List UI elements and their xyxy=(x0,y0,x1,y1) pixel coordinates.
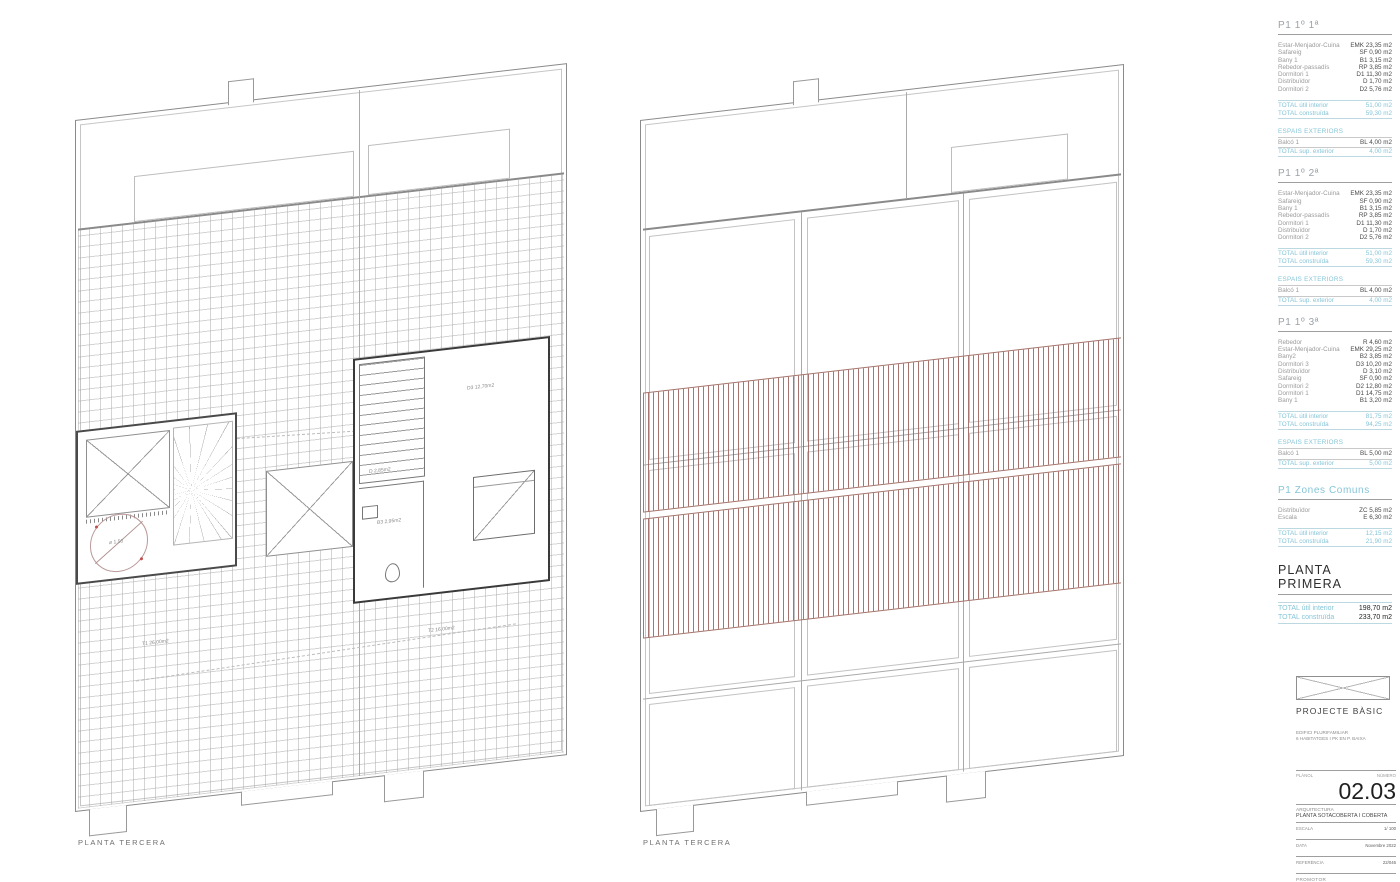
room-rows: Distribuïdor ZC 5,85 m2 Escala E 6,30 m2 xyxy=(1278,507,1392,522)
logo-placeholder-icon xyxy=(1296,676,1390,700)
total-row: TOTAL construïda 59,30 m2 xyxy=(1278,258,1392,266)
zones-heading: P1 Zones Comuns xyxy=(1278,485,1392,496)
room-area: B1 3,20 m2 xyxy=(1360,397,1392,404)
room-label: Escala xyxy=(1278,514,1297,521)
date-row: DATA Novembre 2022 xyxy=(1296,840,1396,856)
exterior-heading: ESPAIS EXTERIORS xyxy=(1278,128,1392,135)
unit-heading: P1 1º 3ª xyxy=(1278,317,1392,328)
roof-terrace-rect xyxy=(951,133,1068,193)
total-value: 59,30 m2 xyxy=(1366,110,1392,118)
area-schedule-sidebar: P1 1º 1ª Estar-Menjador-Cuina EMK 23,35 … xyxy=(1278,20,1392,624)
exterior-heading: ESPAIS EXTERIORS xyxy=(1278,276,1392,283)
total-label: TOTAL sup. exterior xyxy=(1278,148,1334,156)
room-row: Dormitori 1 D1 11,30 m2 xyxy=(1278,220,1392,227)
divider xyxy=(1296,804,1396,805)
stair-overhang xyxy=(946,771,986,803)
room-area: EMK 29,25 m2 xyxy=(1350,346,1392,353)
stair-overhang xyxy=(89,805,127,836)
room-label: Bany 1 xyxy=(1278,397,1298,404)
room-area: D 1,70 m2 xyxy=(1363,78,1392,85)
room-area: RP 3,85 m2 xyxy=(1359,64,1392,71)
room-label: Estar-Menjador-Cuina xyxy=(1278,346,1340,353)
title-block: PROJECTE BÀSIC EDIFICI PLURIFAMILIAR 6 H… xyxy=(1296,676,1396,882)
room-row: Safareig SF 0,90 m2 xyxy=(1278,198,1392,205)
room-label: Rebedor-passadís xyxy=(1278,212,1329,219)
room-row: Rebedor-passadís RP 3,85 m2 xyxy=(1278,212,1392,219)
total-label: TOTAL útil interior xyxy=(1278,102,1328,110)
stair-core: ø 1,50 xyxy=(76,412,237,585)
room-area: D1 14,75 m2 xyxy=(1356,390,1392,397)
room-label: Distribuïdor xyxy=(1278,368,1310,375)
curved-stair xyxy=(173,421,233,546)
room-area: B1 3,15 m2 xyxy=(1360,57,1392,64)
room-area: EMK 23,35 m2 xyxy=(1350,190,1392,197)
total-row: TOTAL construïda 94,25 m2 xyxy=(1278,421,1392,429)
room-row: Rebedor-passadís RP 3,85 m2 xyxy=(1278,64,1392,71)
room-row: Distribuïdor D 1,70 m2 xyxy=(1278,78,1392,85)
divider xyxy=(1278,182,1392,183)
skylight xyxy=(266,461,353,557)
exterior-row: Balcó 1 BL 4,00 m2 xyxy=(1278,287,1392,294)
plan-caption-left: PLANTA TERCERA xyxy=(78,838,166,847)
room-rows: Estar-Menjador-Cuina EMK 23,35 m2 Safare… xyxy=(1278,42,1392,93)
total-value: 4,00 m2 xyxy=(1369,297,1392,305)
total-value: 198,70 m2 xyxy=(1359,604,1392,613)
room-row: Dormitori 1 D1 14,75 m2 xyxy=(1278,390,1392,397)
room-area: SF 0,90 m2 xyxy=(1359,49,1392,56)
total-label: TOTAL útil interior xyxy=(1278,530,1328,538)
escala-value: 1/ 100 xyxy=(1384,826,1396,831)
total-label: TOTAL construïda xyxy=(1278,538,1329,546)
room-label: Distribuïdor xyxy=(1278,507,1310,514)
sheet-number: 02.03 xyxy=(1296,778,1396,804)
zones-totals: TOTAL útil interior 12,15 m2 TOTAL const… xyxy=(1278,528,1392,547)
total-row: TOTAL útil interior 51,00 m2 xyxy=(1278,250,1392,258)
room-area: BL 4,00 m2 xyxy=(1360,287,1392,294)
total-label: TOTAL construïda xyxy=(1278,258,1329,266)
project-line2: 6 HABITATGES I PK EN P. BAIXA xyxy=(1296,736,1396,742)
ref-label: REFERÈNCIA xyxy=(1296,860,1324,865)
promotor-label: PROMOTOR xyxy=(1296,874,1396,882)
exterior-row: Balcó 1 BL 5,00 m2 xyxy=(1278,450,1392,457)
total-value: 5,00 m2 xyxy=(1369,460,1392,468)
room-label: Dormitori 3 xyxy=(1278,361,1309,368)
sheet-title: PLANTA SOTACOBERTA I COBERTA xyxy=(1296,813,1396,819)
roof-panel xyxy=(969,650,1117,769)
room-label: Dormitori 2 xyxy=(1278,383,1309,390)
scale-row: ESCALA 1/ 100 xyxy=(1296,823,1396,839)
room-label: Distribuïdor xyxy=(1278,227,1310,234)
room-area: D2 5,76 m2 xyxy=(1359,234,1392,241)
total-value: 59,30 m2 xyxy=(1366,258,1392,266)
elevator-shaft xyxy=(86,430,170,518)
room-label: Dormitori 2 xyxy=(1278,86,1309,93)
reference-row: REFERÈNCIA 22/046 xyxy=(1296,857,1396,873)
room-label: Estar-Menjador-Cuina xyxy=(1278,42,1340,49)
room-area: E 6,30 m2 xyxy=(1363,514,1392,521)
room-label: Rebedor-passadís xyxy=(1278,64,1329,71)
total-label: TOTAL construïda xyxy=(1278,110,1329,118)
total-value: 21,90 m2 xyxy=(1366,538,1392,546)
room-row: Dormitori 1 D1 11,30 m2 xyxy=(1278,71,1392,78)
total-label: TOTAL sup. exterior xyxy=(1278,460,1334,468)
room-row: Escala E 6,30 m2 xyxy=(1278,514,1392,521)
roof-panel xyxy=(649,687,795,806)
floor-plan-right xyxy=(640,64,1124,812)
total-row: TOTAL útil interior 198,70 m2 xyxy=(1278,604,1392,613)
room-area: D3 10,20 m2 xyxy=(1356,361,1392,368)
room-area: ZC 5,85 m2 xyxy=(1359,507,1392,514)
room-rows: Rebedor R 4,60 m2 Estar-Menjador-Cuina E… xyxy=(1278,339,1392,405)
room-row: Dormitori 2 D2 12,80 m2 xyxy=(1278,383,1392,390)
exterior-heading: ESPAIS EXTERIORS xyxy=(1278,439,1392,446)
room-label: Bany 1 xyxy=(1278,57,1298,64)
room-area: BL 4,00 m2 xyxy=(1360,139,1392,146)
total-label: TOTAL construïda xyxy=(1278,613,1334,622)
plan-caption-right: PLANTA TERCERA xyxy=(643,838,731,847)
total-row: TOTAL útil interior 12,15 m2 xyxy=(1278,530,1392,538)
interior-stair xyxy=(359,357,425,485)
room-row: Distribuïdor ZC 5,85 m2 xyxy=(1278,507,1392,514)
data-value: Novembre 2022 xyxy=(1365,843,1396,848)
divider xyxy=(1278,34,1392,35)
project-type: PROJECTE BÀSIC xyxy=(1296,706,1396,716)
room-label: Dormitori 1 xyxy=(1278,220,1309,227)
total-row: TOTAL construïda 21,90 m2 xyxy=(1278,538,1392,546)
room-row: Estar-Menjador-Cuina EMK 23,35 m2 xyxy=(1278,42,1392,49)
exterior-rows: Balcó 1 BL 4,00 m2 xyxy=(1278,285,1392,296)
room-row: Estar-Menjador-Cuina EMK 29,25 m2 xyxy=(1278,346,1392,353)
total-value: 233,70 m2 xyxy=(1359,613,1392,622)
total-value: 12,15 m2 xyxy=(1366,530,1392,538)
total-value: 4,00 m2 xyxy=(1369,148,1392,156)
room-label: D3 12,70m2 xyxy=(467,382,494,391)
roof-notch xyxy=(228,78,254,105)
room-area: SF 0,90 m2 xyxy=(1359,198,1392,205)
exterior-row: Balcó 1 BL 4,00 m2 xyxy=(1278,139,1392,146)
roof-panel xyxy=(807,668,959,788)
exterior-rows: Balcó 1 BL 5,00 m2 xyxy=(1278,448,1392,459)
room-row: Bany 1 B1 3,20 m2 xyxy=(1278,397,1392,404)
room-rows: Estar-Menjador-Cuina EMK 23,35 m2 Safare… xyxy=(1278,190,1392,241)
exterior-total: TOTAL sup. exterior 4,00 m2 xyxy=(1278,297,1392,306)
total-value: 51,00 m2 xyxy=(1366,102,1392,110)
room-label: Rebedor xyxy=(1278,339,1302,346)
total-label: TOTAL útil interior xyxy=(1278,604,1334,613)
divider xyxy=(1278,594,1392,595)
room-area: B1 3,15 m2 xyxy=(1360,205,1392,212)
divider xyxy=(1278,331,1392,332)
unit-schedule-3: P1 1º 3ª Rebedor R 4,60 m2 Estar-Menjado… xyxy=(1278,317,1392,469)
room-area: D 1,70 m2 xyxy=(1363,227,1392,234)
sink-icon xyxy=(362,505,378,520)
unit-schedule-2: P1 1º 2ª Estar-Menjador-Cuina EMK 23,35 … xyxy=(1278,168,1392,305)
total-value: 51,00 m2 xyxy=(1366,250,1392,258)
room-label: Dormitori 1 xyxy=(1278,71,1309,78)
unit-totals: TOTAL útil interior 51,00 m2 TOTAL const… xyxy=(1278,100,1392,119)
room-row: Bany2 B2 3,85 m2 xyxy=(1278,353,1392,360)
stair-overhang xyxy=(656,805,694,836)
total-row: TOTAL construïda 233,70 m2 xyxy=(1278,613,1392,622)
room-area: B2 3,85 m2 xyxy=(1360,353,1392,360)
room-row: Safareig SF 0,90 m2 xyxy=(1278,375,1392,382)
planol-label: PLÀNOL xyxy=(1296,773,1313,778)
stair-overhang xyxy=(384,771,424,803)
room-area: D 3,10 m2 xyxy=(1363,368,1392,375)
total-row: TOTAL útil interior 81,75 m2 xyxy=(1278,413,1392,421)
unit-totals: TOTAL útil interior 81,75 m2 TOTAL const… xyxy=(1278,411,1392,430)
unit-heading: P1 1º 2ª xyxy=(1278,168,1392,179)
room-label: Balcó 1 xyxy=(1278,139,1299,146)
room-label: Bany2 xyxy=(1278,353,1296,360)
room-area: SF 0,90 m2 xyxy=(1359,375,1392,382)
room-row: Dormitori 3 D3 10,20 m2 xyxy=(1278,361,1392,368)
total-row: TOTAL útil interior 51,00 m2 xyxy=(1278,102,1392,110)
total-label: TOTAL construïda xyxy=(1278,421,1329,429)
room-label: Safareig xyxy=(1278,49,1301,56)
room-label: Estar-Menjador-Cuina xyxy=(1278,190,1340,197)
room-area: D2 5,76 m2 xyxy=(1359,86,1392,93)
room-label: Safareig xyxy=(1278,375,1301,382)
data-label: DATA xyxy=(1296,843,1307,848)
room-label: Balcó 1 xyxy=(1278,287,1299,294)
dimension-dot xyxy=(95,525,98,528)
divider xyxy=(1278,499,1392,500)
exterior-rows: Balcó 1 BL 4,00 m2 xyxy=(1278,137,1392,148)
total-label: TOTAL útil interior xyxy=(1278,413,1328,421)
room-row: Rebedor R 4,60 m2 xyxy=(1278,339,1392,346)
room-label: Safareig xyxy=(1278,198,1301,205)
total-label: TOTAL sup. exterior xyxy=(1278,297,1334,305)
room-label: Balcó 1 xyxy=(1278,450,1299,457)
total-row: TOTAL construïda 59,30 m2 xyxy=(1278,110,1392,118)
room-area: EMK 23,35 m2 xyxy=(1350,42,1392,49)
room-area: BL 5,00 m2 xyxy=(1360,450,1392,457)
bed-icon xyxy=(473,470,535,541)
exterior-total: TOTAL sup. exterior 4,00 m2 xyxy=(1278,148,1392,157)
attic-suite: D3 12,70m2 D 2,85m2 B3 2,95m2 xyxy=(353,336,550,604)
floor-plan-left: ø 1,50 D3 12,70m2 D 2,85m2 B3 2,95m2 T1 … xyxy=(75,63,567,812)
toilet-icon xyxy=(385,562,400,583)
room-row: Estar-Menjador-Cuina EMK 23,35 m2 xyxy=(1278,190,1392,197)
unit-totals: TOTAL útil interior 51,00 m2 TOTAL const… xyxy=(1278,248,1392,267)
unit-schedule-1: P1 1º 1ª Estar-Menjador-Cuina EMK 23,35 … xyxy=(1278,20,1392,157)
party-wall-line xyxy=(906,92,907,198)
room-row: Dormitori 2 D2 5,76 m2 xyxy=(1278,86,1392,93)
floor-total-schedule: PLANTA PRIMERA TOTAL útil interior 198,7… xyxy=(1278,563,1392,624)
unit-heading: P1 1º 1ª xyxy=(1278,20,1392,31)
room-row: Safareig SF 0,90 m2 xyxy=(1278,49,1392,56)
room-label: Dormitori 2 xyxy=(1278,234,1309,241)
room-row: Distribuïdor D 1,70 m2 xyxy=(1278,227,1392,234)
dimension-dot xyxy=(140,557,143,560)
divider xyxy=(1296,770,1396,771)
room-label: Dormitori 1 xyxy=(1278,390,1309,397)
ref-value: 22/046 xyxy=(1383,860,1396,865)
room-area: D2 12,80 m2 xyxy=(1356,383,1392,390)
floor-totals: TOTAL útil interior 198,70 m2 TOTAL cons… xyxy=(1278,602,1392,624)
total-label: TOTAL útil interior xyxy=(1278,250,1328,258)
room-area: D1 11,30 m2 xyxy=(1356,220,1392,227)
room-area: RP 3,85 m2 xyxy=(1359,212,1392,219)
room-row: Bany 1 B1 3,15 m2 xyxy=(1278,205,1392,212)
room-area: D1 11,30 m2 xyxy=(1356,71,1392,78)
bathroom xyxy=(359,481,424,596)
circle-label: ø 1,50 xyxy=(109,538,123,546)
floor-heading: PLANTA PRIMERA xyxy=(1278,563,1392,591)
room-row: Bany 1 B1 3,15 m2 xyxy=(1278,57,1392,64)
room-row: Dormitori 2 D2 5,76 m2 xyxy=(1278,234,1392,241)
escala-label: ESCALA xyxy=(1296,826,1313,831)
exterior-total: TOTAL sup. exterior 5,00 m2 xyxy=(1278,460,1392,469)
total-value: 81,75 m2 xyxy=(1366,413,1392,421)
common-zones-schedule: P1 Zones Comuns Distribuïdor ZC 5,85 m2 … xyxy=(1278,485,1392,548)
room-row: Distribuïdor D 3,10 m2 xyxy=(1278,368,1392,375)
room-area: R 4,60 m2 xyxy=(1363,339,1392,346)
roof-notch xyxy=(793,78,819,105)
total-value: 94,25 m2 xyxy=(1366,421,1392,429)
room-label: Bany 1 xyxy=(1278,205,1298,212)
room-label: Distribuïdor xyxy=(1278,78,1310,85)
